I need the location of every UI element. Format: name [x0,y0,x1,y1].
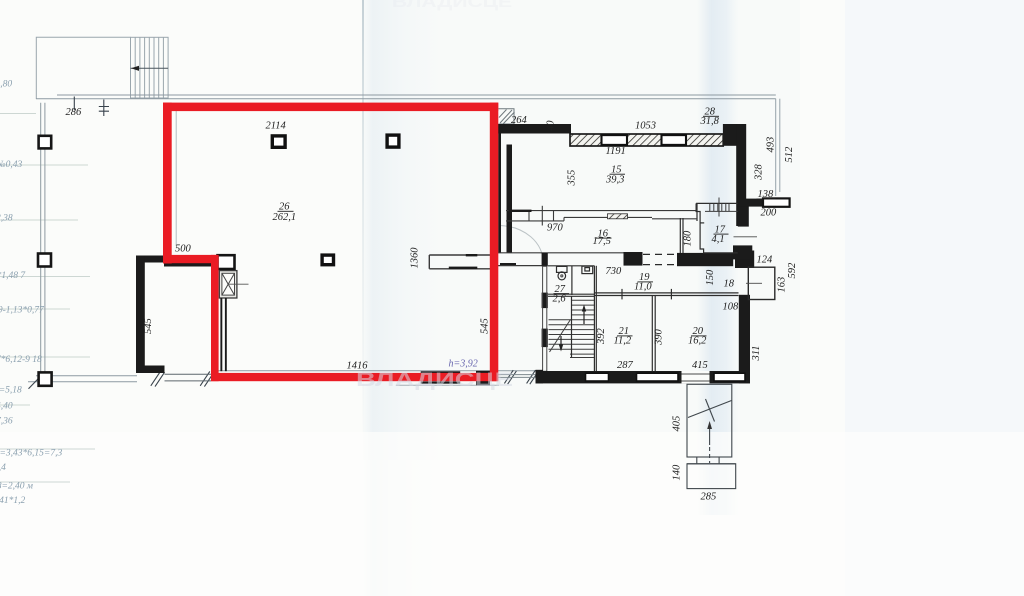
svg-text:3,4: 3,4 [0,463,6,473]
svg-text:405: 405 [672,416,683,432]
svg-text:0,86*1,48 7: 0,86*1,48 7 [0,271,26,281]
svg-text:6*1,80: 6*1,80 [0,79,12,89]
svg-text:311: 311 [751,346,762,362]
svg-text:493: 493 [766,137,777,153]
svg-text:1191: 1191 [606,146,626,157]
svg-text:18=2,40 м: 18=2,40 м [0,481,33,491]
svg-text:355: 355 [567,170,578,187]
svg-text:2,41*1,2: 2,41*1,2 [0,496,26,506]
svg-text:ВЛАДИСЦЕ: ВЛАДИСЦЕ [356,369,513,391]
svg-text:108: 108 [723,302,740,313]
svg-text:1053: 1053 [635,120,656,131]
svg-text:124: 124 [757,255,774,266]
svg-text:545: 545 [480,318,491,334]
svg-text:2,6: 2,6 [553,293,567,304]
svg-text:4,40: 4,40 [0,401,13,411]
svg-text:287: 287 [617,360,634,371]
svg-text:4,1: 4,1 [712,234,725,245]
svg-text:16,2: 16,2 [688,336,707,347]
svg-text:180: 180 [683,230,694,247]
svg-text:2,38: 2,38 [0,213,13,223]
svg-text:31,8: 31,8 [700,116,720,127]
svg-text:26: 26 [279,201,290,212]
svg-text:262,1: 262,1 [273,212,297,223]
svg-text:17,5: 17,5 [593,236,611,247]
svg-text:264: 264 [511,115,528,126]
svg-text:730: 730 [606,266,623,277]
svg-text:2114: 2114 [266,121,287,132]
svg-text:18: 18 [724,278,735,289]
svg-text:545: 545 [143,318,154,334]
svg-text:0,07*6,12-9 18: 0,07*6,12-9 18 [0,355,42,365]
svg-text:512: 512 [784,146,795,163]
svg-text:140: 140 [672,464,683,481]
svg-text:150: 150 [705,269,716,286]
svg-text:200: 200 [761,207,778,218]
svg-text:285: 285 [701,491,717,502]
svg-text:970: 970 [547,222,564,233]
svg-text:500: 500 [175,243,192,254]
svg-text:11,0: 11,0 [634,282,652,293]
svg-text:286: 286 [66,107,83,118]
svg-text:04=3,43*6,15=7,3: 04=3,43*6,15=7,3 [0,449,62,459]
svg-text:163: 163 [777,277,788,293]
svg-text:392: 392 [596,328,607,346]
svg-text:0,51№0,43: 0,51№0,43 [0,160,22,170]
svg-text:40: 40 [546,120,557,131]
svg-text:328: 328 [754,164,765,182]
svg-text:11,2: 11,2 [614,336,632,347]
svg-text:ВЛАДИСЦЕ: ВЛАДИСЦЕ [392,0,512,11]
svg-text:8,09-1,13*0,77: 8,09-1,13*0,77 [0,305,45,315]
svg-text:h=3,92: h=3,92 [449,359,478,370]
svg-text:39,3: 39,3 [605,174,624,185]
svg-text:7,36: 7,36 [0,416,13,426]
svg-text:1360: 1360 [410,247,421,269]
svg-text:390: 390 [654,329,665,347]
svg-text:592: 592 [787,262,798,279]
svg-text:415: 415 [692,360,708,371]
svg-text:1=5,18: 1=5,18 [0,386,22,396]
